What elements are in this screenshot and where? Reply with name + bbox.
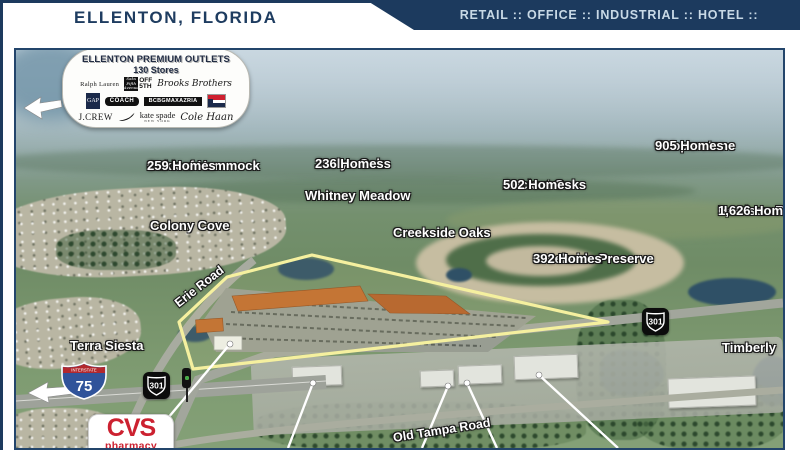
brand-row-3: J.CREW kate spade NEW YORK Cole Haan	[79, 111, 234, 123]
cole-haan-logo: Cole Haan	[180, 112, 233, 123]
us301-shield-icon: 301	[143, 372, 170, 399]
svg-text:75: 75	[76, 378, 93, 395]
aerial-map: INTERSTATE 75 301 301 Oakleaf Hammock259…	[14, 48, 785, 450]
nike-swoosh-icon	[118, 112, 135, 122]
left-arrow-icon	[24, 97, 62, 119]
categories-bar: RETAIL :: OFFICE :: INDUSTRIAL :: HOTEL …	[358, 0, 800, 30]
saks-off-5th-logo: Saks Fifth Avenue OFF5TH	[124, 77, 152, 91]
svg-text:INTERSTATE: INTERSTATE	[71, 368, 97, 373]
jcrew-logo: J.CREW	[79, 112, 113, 122]
svg-text:301: 301	[648, 317, 662, 327]
ellenton-premium-outlets-box: ELLENTON PREMIUM OUTLETS 130 Stores Ralp…	[62, 48, 250, 128]
brand-row-1: Ralph Lauren Saks Fifth Avenue OFF5TH Br…	[80, 77, 232, 91]
bcbg-logo: BCBGMAXAZRIA	[144, 97, 202, 106]
i75-shield-icon: INTERSTATE 75	[61, 362, 107, 400]
outlets-store-count: 130 Stores	[133, 65, 179, 75]
brooks-brothers-logo: Brooks Brothers	[157, 79, 232, 89]
cvs-logo: CVS	[107, 416, 155, 441]
cvs-pharmacy-box: CVS pharmacy	[88, 414, 174, 450]
brand-row-2: GAP COACH BCBGMAXAZRIA	[86, 93, 226, 109]
coach-logo: COACH	[105, 97, 139, 106]
cvs-tagline: pharmacy	[105, 441, 157, 450]
us301-shield-icon: 301	[642, 308, 669, 335]
page-left-border	[0, 0, 3, 450]
gap-logo: GAP	[86, 93, 100, 109]
categories-bar-text: RETAIL :: OFFICE :: INDUSTRIAL :: HOTEL …	[428, 0, 790, 30]
page-title: ELLENTON, FLORIDA	[74, 6, 278, 30]
outlets-title: ELLENTON PREMIUM OUTLETS	[82, 54, 230, 65]
traffic-light-icon	[182, 368, 191, 402]
kate-spade-logo: kate spade NEW YORK	[140, 111, 176, 123]
ralph-lauren-logo: Ralph Lauren	[80, 81, 119, 88]
tommy-hilfiger-logo	[207, 94, 226, 108]
svg-text:301: 301	[149, 381, 163, 391]
